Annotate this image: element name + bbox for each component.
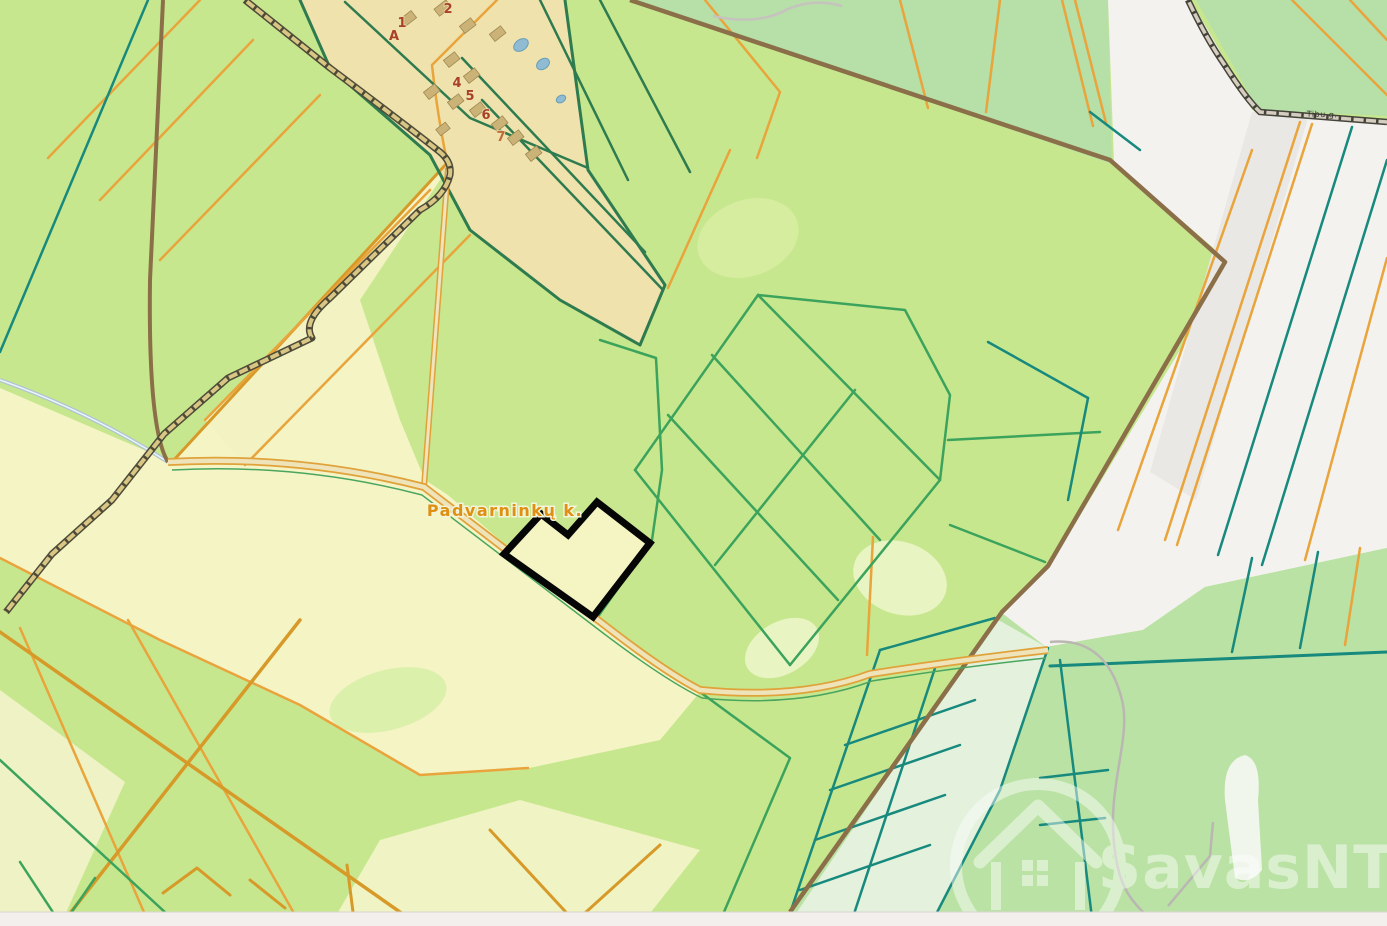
house-window-icon-part — [1022, 860, 1033, 871]
house-window-icon-part — [1037, 875, 1048, 886]
map-canvas[interactable]: Padvarninkų k. 1 A 2 4 5 6 7 Tibu g. Sav… — [0, 0, 1387, 926]
house-number: 7 — [496, 130, 505, 145]
watermark-text: SavasNT — [1098, 833, 1387, 903]
house-number: 2 — [443, 2, 452, 17]
house-number: 5 — [465, 89, 474, 104]
house-window-icon-part — [1022, 875, 1033, 886]
house-number: A — [389, 29, 399, 44]
bottom-bar-bg — [0, 912, 1387, 926]
house-number: 4 — [452, 76, 461, 91]
map-viewport[interactable]: Padvarninkų k. 1 A 2 4 5 6 7 Tibu g. Sav… — [0, 0, 1387, 926]
house-window-icon-part — [1037, 860, 1048, 871]
road-name-label: Tibu g. — [1306, 109, 1338, 119]
bottom-bar — [0, 912, 1387, 926]
place-label: Padvarninkų k. — [427, 501, 583, 520]
house-number: 6 — [481, 108, 490, 123]
